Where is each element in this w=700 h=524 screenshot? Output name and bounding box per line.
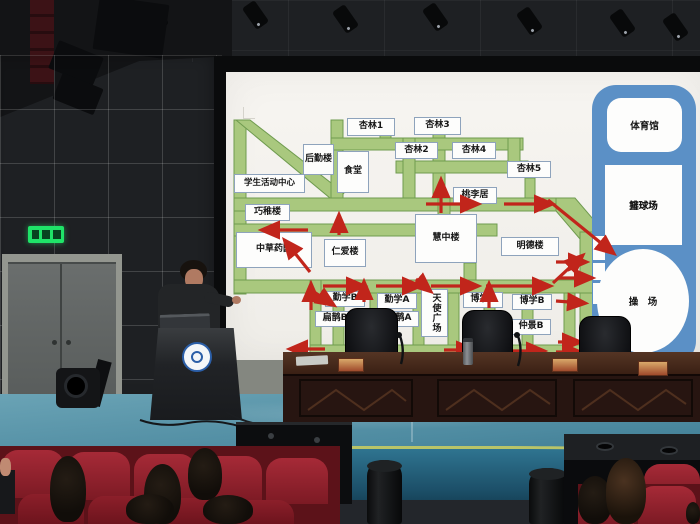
desk-microphone <box>392 330 412 366</box>
name-plate <box>552 358 578 372</box>
audience-head <box>606 458 646 524</box>
podium <box>150 328 242 420</box>
audience-head <box>50 456 86 522</box>
light-lens <box>64 374 88 398</box>
desk-microphone <box>508 330 528 368</box>
box-knob <box>268 433 274 439</box>
lecture-hall-photo: 体育馆 排球场 篮球场 操 场 杏林1 杏林3 杏林2 杏林4 杏林5 后勤楼 … <box>0 0 700 524</box>
audience-head <box>203 495 253 524</box>
presenter-hand <box>232 296 241 304</box>
audience-head <box>126 494 174 524</box>
audience-head <box>188 448 222 500</box>
av-table-top <box>564 434 700 460</box>
water-bottle <box>463 338 473 365</box>
audience-member-edge <box>0 470 15 514</box>
school-logo <box>182 342 212 372</box>
trash-bin <box>367 460 402 524</box>
paper-stack <box>296 355 328 366</box>
speaker-box <box>93 0 170 59</box>
audience-face-edge <box>0 458 11 476</box>
projection-screen: 体育馆 排球场 篮球场 操 场 杏林1 杏林3 杏林2 杏林4 杏林5 后勤楼 … <box>214 56 700 360</box>
cable-grommet <box>596 442 614 451</box>
cable-grommet <box>660 446 678 455</box>
exit-sign <box>28 226 64 243</box>
name-plate <box>338 358 364 372</box>
moving-head-light <box>56 360 108 410</box>
trash-bin <box>529 468 566 524</box>
box-knob <box>314 437 320 443</box>
desk-carving <box>283 374 700 422</box>
seat-back <box>266 458 328 504</box>
audience-head <box>686 502 700 524</box>
name-plate <box>638 361 668 376</box>
